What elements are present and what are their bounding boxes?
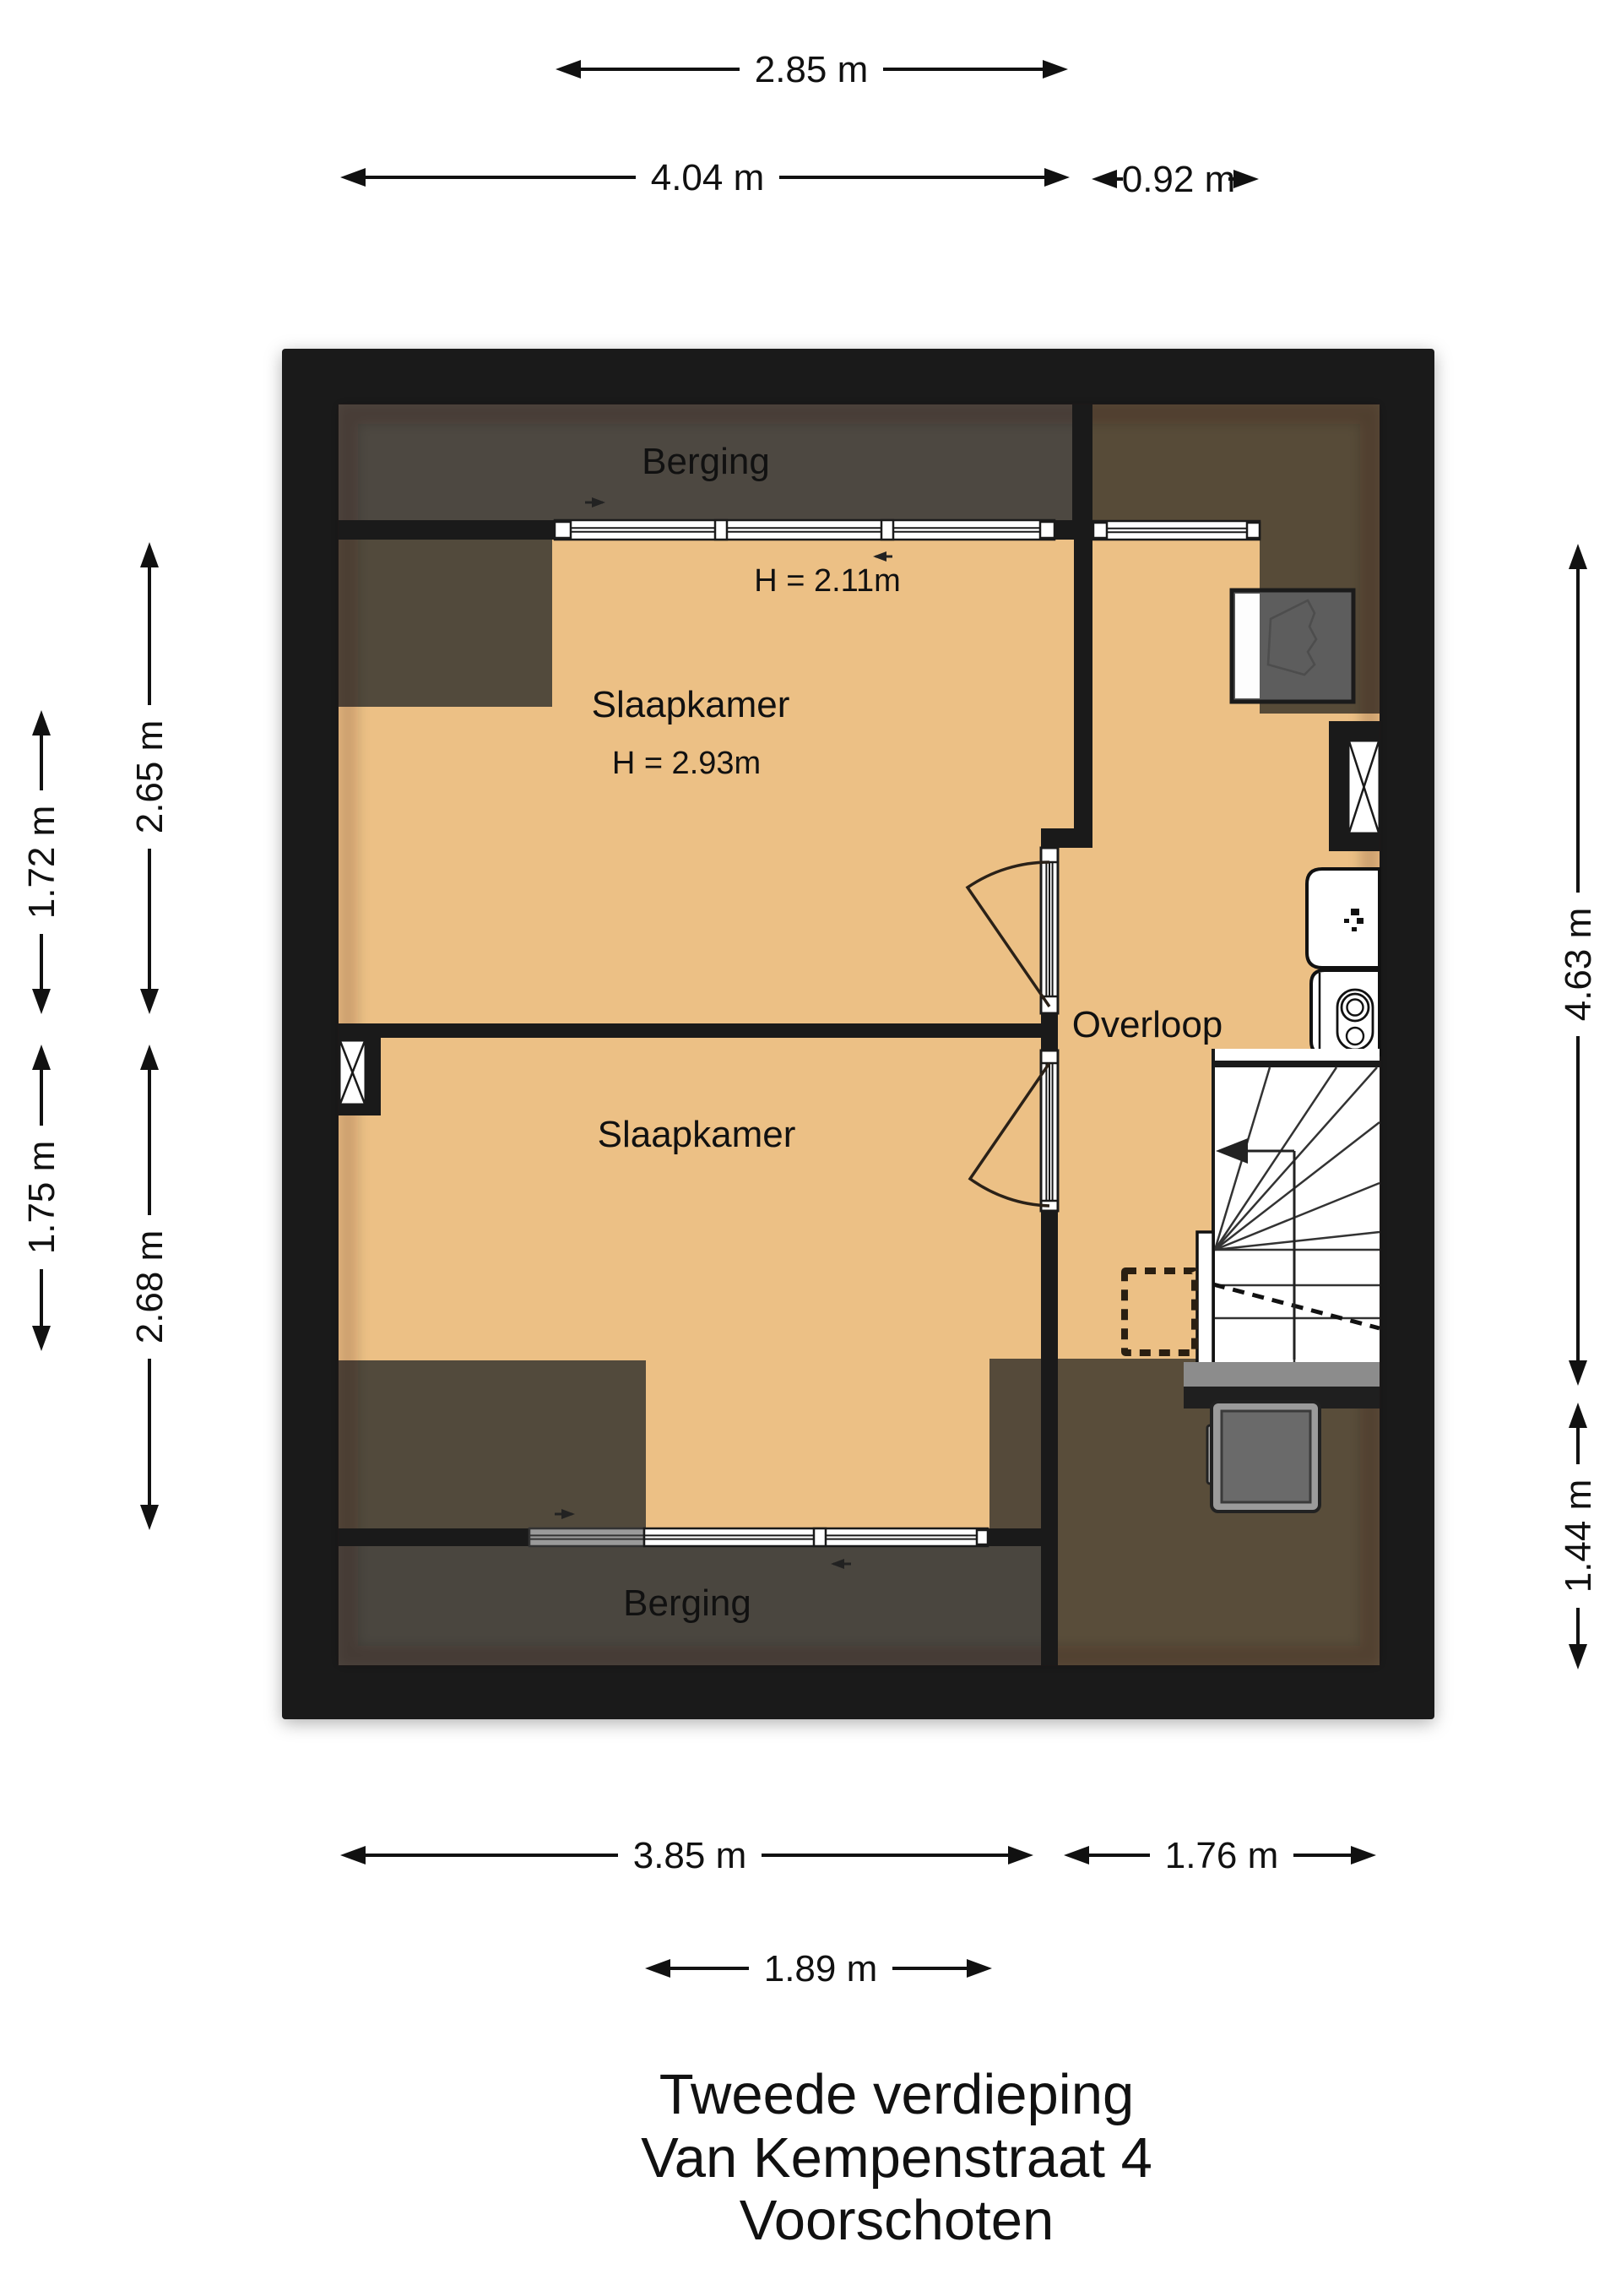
svg-text:3.85 m: 3.85 m <box>633 1835 747 1876</box>
svg-text:Berging: Berging <box>642 441 770 482</box>
svg-text:2.85 m: 2.85 m <box>755 49 869 90</box>
svg-text:1.44 m: 1.44 m <box>1558 1479 1599 1593</box>
svg-text:2.68 m: 2.68 m <box>129 1230 171 1344</box>
svg-text:2.65 m: 2.65 m <box>129 720 171 834</box>
svg-text:Slaapkamer: Slaapkamer <box>592 684 790 725</box>
svg-text:Voorschoten: Voorschoten <box>740 2189 1054 2252</box>
svg-text:4.63 m: 4.63 m <box>1558 908 1599 1022</box>
svg-text:4.04 m: 4.04 m <box>651 157 765 198</box>
svg-text:1.76 m: 1.76 m <box>1165 1835 1279 1876</box>
svg-text:Slaapkamer: Slaapkamer <box>598 1114 796 1155</box>
svg-text:0.92 m: 0.92 m <box>1122 159 1236 200</box>
svg-text:Berging: Berging <box>623 1582 751 1624</box>
svg-text:1.75 m: 1.75 m <box>21 1141 62 1255</box>
svg-text:H = 2.11m: H = 2.11m <box>754 563 901 599</box>
svg-text:1.89 m: 1.89 m <box>764 1948 878 1989</box>
svg-text:H = 2.93m: H = 2.93m <box>612 746 761 781</box>
svg-text:Van Kempenstraat 4: Van Kempenstraat 4 <box>641 2126 1152 2190</box>
svg-text:Overloop: Overloop <box>1072 1004 1223 1045</box>
svg-text:1.72 m: 1.72 m <box>21 806 62 920</box>
svg-text:Tweede verdieping: Tweede verdieping <box>659 2063 1134 2126</box>
